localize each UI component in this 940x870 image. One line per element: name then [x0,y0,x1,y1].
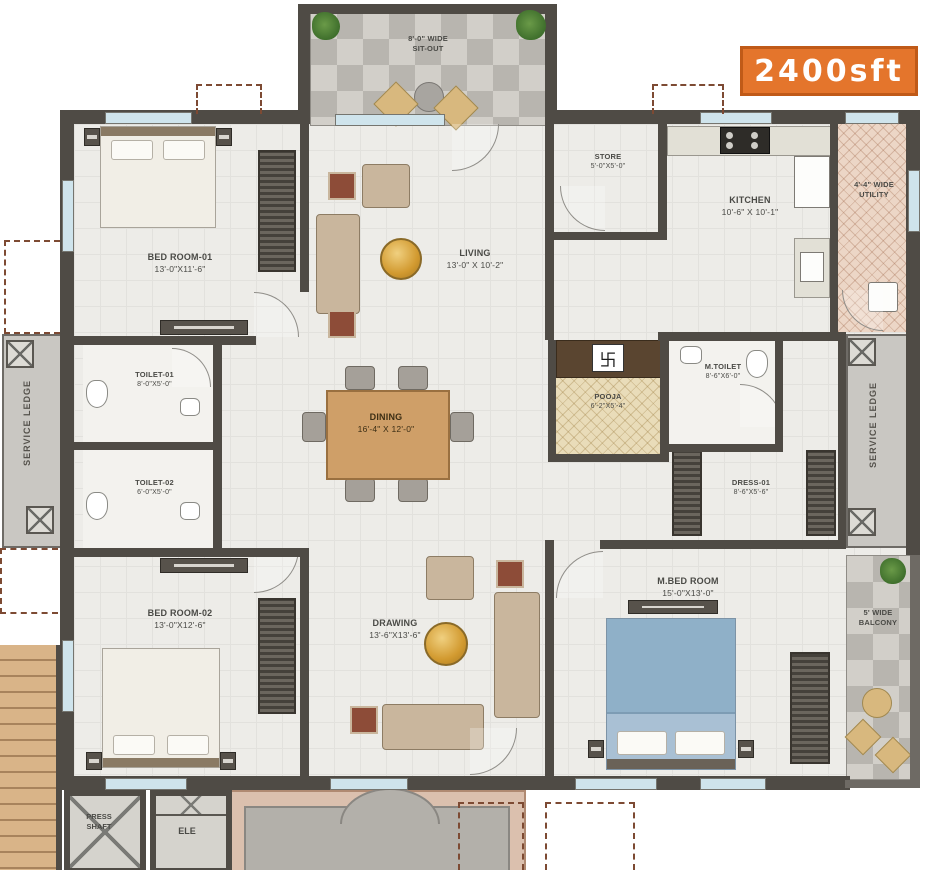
window [908,170,920,232]
swastik-symbol-icon: 卐 [592,344,624,372]
pillow [617,731,667,755]
dress-dims: 8'-6"X5'-6" [698,488,804,497]
dining-chair [302,412,326,442]
window [575,778,657,790]
bedroom1-dims: 13'-0"X11'-6" [115,264,245,275]
kitchen-name: KITCHEN [690,195,810,207]
wall [300,124,309,292]
toilet2-basin-icon [180,502,200,520]
store-dims: 5'-0"X5'-0" [560,162,656,171]
dining-table [326,390,450,480]
side-table [220,752,236,770]
floor-plan: 2400sft 8'-0" WIDE SIT-OUT [0,0,940,870]
bedroom2-dims: 13'-0"X12'-6" [115,620,245,631]
dining-dims: 16'-4" X 12'-0" [336,424,436,435]
sitout-line2: SIT-OUT [368,44,488,54]
service-ledge-left-label: SERVICE LEDGE [22,380,32,466]
mbedroom-bed [606,618,736,770]
plant-icon [312,12,340,40]
wall [658,332,838,341]
bedroom1-wardrobe [258,150,296,272]
living-stool [328,310,356,338]
window [62,640,74,712]
overhang-dash [652,84,724,114]
side-table [216,128,232,146]
wall [74,442,219,450]
bedroom2-label: BED ROOM-02 13'-0"X12'-6" [115,608,245,631]
window [700,778,766,790]
service-ledge-right-label: SERVICE LEDGE [868,382,878,468]
drawing-stool [496,560,524,588]
toilet2-dims: 6'-0"X5'-0" [102,488,207,497]
toilet1-basin-icon [180,398,200,416]
area-badge: 2400sft [740,46,918,96]
drawing-dims: 13'-6"X13'-6" [340,630,450,641]
toilet1-label: TOILET-01 8'-0"X5'-0" [102,370,207,389]
toilet2-label: TOILET-02 6'-0"X5'-0" [102,478,207,497]
dining-name: DINING [336,412,436,424]
window [105,778,187,790]
mtoilet-dims: 8'-6"X6'-0" [678,372,768,381]
utility-label: 4'-4" WIDE UTILITY [846,180,902,200]
mbedroom-label: M.BED ROOM 15'-0"X13'-0" [618,576,758,599]
wall [660,332,669,462]
dining-chair [450,412,474,442]
side-table [86,752,102,770]
dining-chair [345,366,375,390]
side-table [84,128,100,146]
window [330,778,408,790]
overhang-dash [458,802,524,870]
living-sofa [316,214,360,314]
drawing-stool [350,706,378,734]
bedroom1-name: BED ROOM-01 [115,252,245,264]
pooja-name: POOJA [566,392,650,402]
toilet1-name: TOILET-01 [102,370,207,380]
mtoilet-name: M.TOILET [678,362,768,372]
mbedroom-dims: 15'-0"X13'-0" [618,588,758,599]
press-shaft-label: PRESS SHAFT [70,812,128,832]
bed-headboard [103,758,219,767]
sitout-line1: 8'-0" WIDE [368,34,488,44]
wall [830,124,838,332]
pillow [163,140,205,160]
area-badge-text: 2400sft [754,54,904,89]
wall [660,540,846,549]
wall [548,454,669,462]
living-dims: 13'-0" X 10'-2" [420,260,530,271]
bedroom1-bed [100,126,216,228]
pooja-label: POOJA 6'-2"X5'-4" [566,392,650,411]
side-table [588,740,604,758]
drawing-sofa [494,592,540,718]
plant-icon [516,10,546,40]
bed-headboard [607,759,735,769]
window [105,112,192,124]
pooja-dims: 6'-2"X5'-4" [566,402,650,411]
elevator-door-hatch [156,796,226,816]
living-name: LIVING [420,248,530,260]
bed-blanket [607,619,735,714]
wall [298,4,557,14]
store-name: STORE [560,152,656,162]
press-shaft-line1: PRESS [70,812,128,822]
ledge-hatch-icon [26,506,54,534]
wall [300,557,309,776]
bedroom2-name: BED ROOM-02 [115,608,245,620]
wall [74,548,309,557]
mbedroom-wardrobe [790,652,830,764]
balcony-table [862,688,892,718]
dining-chair [398,478,428,502]
drawing-label: DRAWING 13'-6"X13'-6" [340,618,450,641]
wall [548,340,556,462]
sitout-label: 8'-0" WIDE SIT-OUT [368,34,488,54]
wall [74,336,256,345]
drawing-sofa [382,704,484,750]
wall [669,444,783,452]
mtoilet-label: M.TOILET 8'-6"X6'-0" [678,362,768,381]
drawing-name: DRAWING [340,618,450,630]
bed-headboard [101,127,215,136]
wall [545,540,554,776]
living-armchair [362,164,410,208]
kitchen-label: KITCHEN 10'-6" X 10'-1" [690,195,810,218]
window [335,114,445,126]
balcony-rail [845,780,920,788]
living-stool [328,172,356,200]
dress-name: DRESS-01 [698,478,804,488]
overhang-dash [545,802,635,870]
pillow [113,735,155,755]
toilet1-dims: 8'-0"X5'-0" [102,380,207,389]
sink-icon [800,252,824,282]
pooja-symbol: 卐 [600,346,617,371]
press-shaft-line2: SHAFT [70,822,128,832]
window [62,180,74,252]
mbedroom-name: M.BED ROOM [618,576,758,588]
mbedroom-bench [628,600,718,614]
bedroom1-label: BED ROOM-01 13'-0"X11'-6" [115,252,245,275]
overhang-dash [196,84,262,114]
drawing-armchair [426,556,474,600]
dress-wardrobe [806,450,836,536]
wall [554,232,667,240]
balcony-line2: BALCONY [848,618,908,628]
utility-line2: UTILITY [846,190,902,200]
bedroom2-bed [102,648,220,768]
balcony-line1: 5' WIDE [848,608,908,618]
wall [600,540,660,549]
wall [838,332,846,548]
wall [298,4,310,124]
ledge-hatch-icon [6,340,34,368]
dining-label: DINING 16'-4" X 12'-0" [336,412,436,435]
overhang-dash [4,240,60,334]
pillow [675,731,725,755]
elevator-label: ELE [158,826,216,838]
living-center-table [380,238,422,280]
ledge-hatch-icon [848,508,876,536]
pillow [167,735,209,755]
window [845,112,899,124]
kitchen-dims: 10'-6" X 10'-1" [690,207,810,218]
utility-line1: 4'-4" WIDE [846,180,902,190]
bedroom1-dresser [160,320,248,335]
wall [545,4,557,124]
balcony-label: 5' WIDE BALCONY [848,608,908,628]
staircase [0,645,62,870]
overhang-dash [0,548,58,614]
dining-chair [398,366,428,390]
wall [775,332,783,444]
dress-label: DRESS-01 8'-6"X5'-6" [698,478,804,497]
toilet2-name: TOILET-02 [102,478,207,488]
pillow [111,140,153,160]
bedroom2-wardrobe [258,598,296,714]
side-table [738,740,754,758]
ledge-hatch-icon [848,338,876,366]
balcony-rail [910,555,920,788]
dining-chair [345,478,375,502]
wall [658,124,667,240]
plant-icon [880,558,906,584]
stove-icon [720,127,770,154]
living-label: LIVING 13'-0" X 10'-2" [420,248,530,271]
bedroom2-dresser [160,558,248,573]
store-label: STORE 5'-0"X5'-0" [560,152,656,171]
wall [545,124,554,340]
